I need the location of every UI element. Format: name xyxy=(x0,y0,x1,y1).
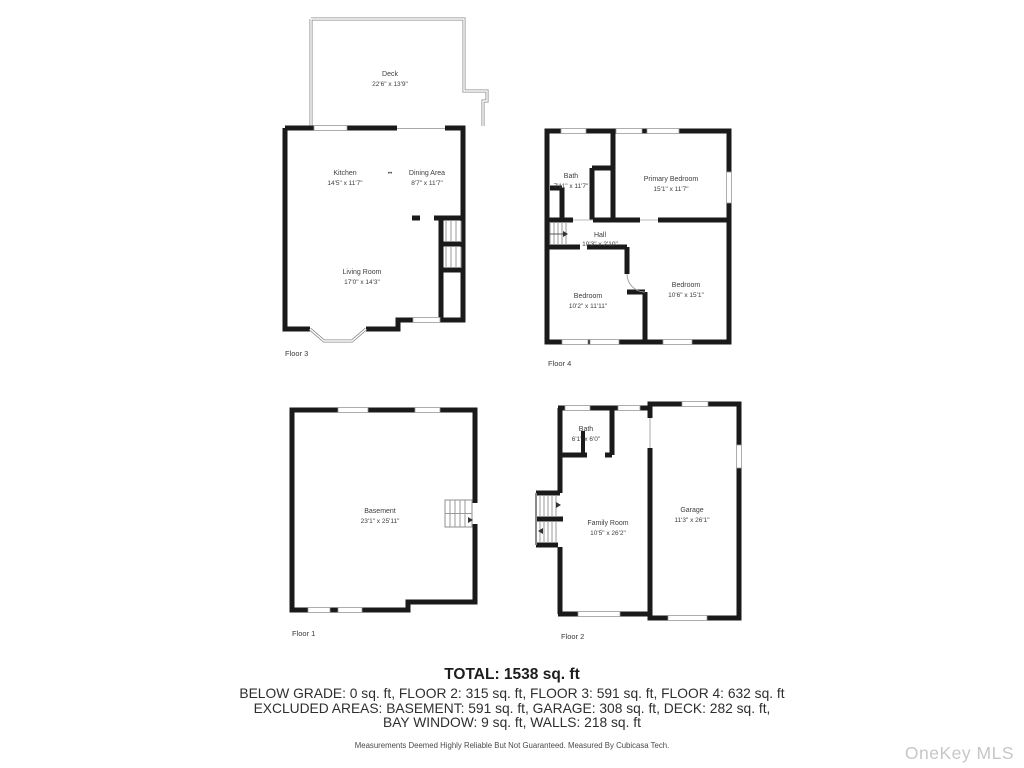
floor4-caption: Floor 4 xyxy=(548,359,571,368)
room-label-living: Living Room xyxy=(343,269,382,276)
room-label-hall: Hall xyxy=(594,232,607,239)
area-summary: TOTAL: 1538 sq. ft BELOW GRADE: 0 sq. ft… xyxy=(0,666,1024,731)
room-label-dining: Dining Area xyxy=(409,170,445,177)
floor4-outline xyxy=(547,131,729,342)
room-dims-primary-bedroom: 15'1" x 11'7" xyxy=(653,186,689,193)
room-dims-family-room: 10'5" x 26'2" xyxy=(590,530,626,537)
floorplan-canvas: Deck 22'6" x 13'9" Kitchen 14'5" x 11'7"… xyxy=(0,0,1024,768)
floorplan-page: Deck 22'6" x 13'9" Kitchen 14'5" x 11'7"… xyxy=(0,0,1024,768)
floor3-caption: Floor 3 xyxy=(285,349,308,358)
floor1-caption: Floor 1 xyxy=(292,629,315,638)
room-dims-hall: 10'3" x 2'10" xyxy=(582,241,618,248)
room-label-primary-bedroom: Primary Bedroom xyxy=(644,176,699,183)
garage-door-opening xyxy=(647,418,654,448)
ceiling-lights-dots: •• xyxy=(388,170,393,177)
room-label-garage: Garage xyxy=(680,507,703,514)
deck-walls xyxy=(311,19,487,126)
room-dims-kitchen: 14'5" x 11'7" xyxy=(327,180,363,187)
room-dims-bath2: 6'1" x 6'0" xyxy=(572,436,601,443)
floorplan-floor1: Basement 23'1" x 25'11" Floor 1 xyxy=(292,408,479,639)
floorplan-floor4: Bath 7'11" x 11'7" Primary Bedroom 15'1"… xyxy=(547,129,732,369)
room-dims-dining: 8'7" x 11'7" xyxy=(411,180,443,187)
floor2-caption: Floor 2 xyxy=(561,632,584,641)
room-dims-garage: 11'3" x 26'1" xyxy=(674,517,710,524)
excluded-areas-line1: EXCLUDED AREAS: BASEMENT: 591 sq. ft, GA… xyxy=(0,702,1024,717)
room-label-family-room: Family Room xyxy=(587,520,628,527)
room-label-basement: Basement xyxy=(364,508,396,515)
floor-areas-line: BELOW GRADE: 0 sq. ft, FLOOR 2: 315 sq. … xyxy=(0,687,1024,702)
room-label-kitchen: Kitchen xyxy=(333,170,356,177)
room-label-bedroom-left: Bedroom xyxy=(574,293,603,300)
floor3-fill xyxy=(285,128,463,341)
room-dims-deck: 22'6" x 13'9" xyxy=(372,81,408,88)
onekey-mls-watermark: OneKey MLS xyxy=(905,743,1014,764)
excluded-areas-line2: BAY WINDOW: 9 sq. ft, WALLS: 218 sq. ft xyxy=(0,716,1024,731)
floorplan-floor3: Deck 22'6" x 13'9" Kitchen 14'5" x 11'7"… xyxy=(285,19,487,358)
floor1-stairs xyxy=(445,500,473,527)
total-area: TOTAL: 1538 sq. ft xyxy=(0,666,1024,684)
room-label-bath4: Bath xyxy=(564,173,579,180)
room-dims-basement: 23'1" x 25'11" xyxy=(361,518,400,525)
room-label-bedroom-right: Bedroom xyxy=(672,282,701,289)
room-label-deck: Deck xyxy=(382,71,398,78)
deck-door xyxy=(397,125,445,131)
room-dims-bedroom-right: 10'6" x 15'1" xyxy=(668,292,704,299)
floorplan-floor2: Bath 6'1" x 6'0" Family Room 10'5" x 26'… xyxy=(536,402,742,642)
room-dims-bath4: 7'11" x 11'7" xyxy=(554,183,589,190)
measurement-disclaimer: Measurements Deemed Highly Reliable But … xyxy=(0,741,1024,750)
room-dims-living: 17'0" x 14'3" xyxy=(344,279,380,286)
room-label-bath2: Bath xyxy=(579,426,594,433)
room-dims-bedroom-left: 10'2" x 11'11" xyxy=(569,303,608,310)
